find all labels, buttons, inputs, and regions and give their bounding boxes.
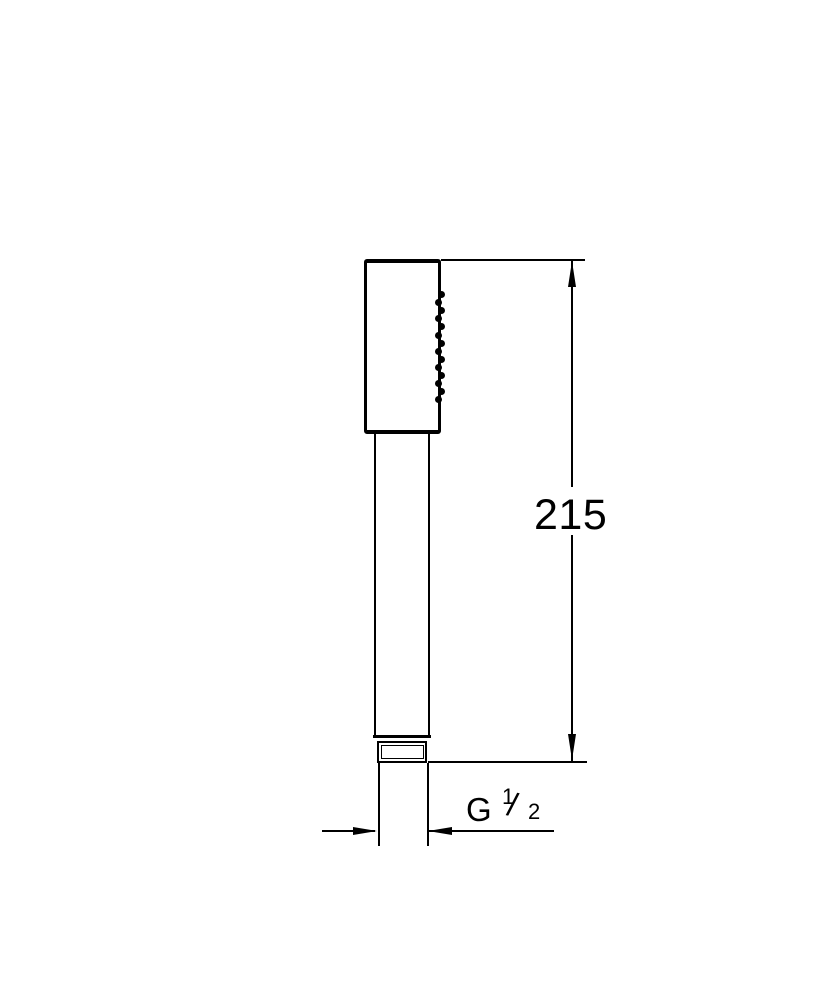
spray-nozzle-dot [438,307,445,314]
handle-right-edge [428,434,430,736]
dimension-arrow-left-icon [428,827,452,835]
dimension-arrow-right-icon [353,827,377,835]
height-dimension-label: 215 [534,494,607,537]
extension-line-bottom [428,761,587,763]
spray-nozzle-dot [435,380,442,387]
thread-dimension-label: G 1 / 2 [466,783,556,823]
connector-nut-inner [381,745,424,759]
extension-line-top [441,259,585,261]
connector-nut [377,741,427,763]
spray-nozzles-column [434,291,445,405]
pipe-left-edge [378,763,380,846]
dimension-arrow-up-icon [568,261,576,287]
spray-nozzle-dot [438,356,445,363]
height-dimension-line-upper [571,260,573,487]
spray-nozzle-dot [435,348,442,355]
spray-nozzle-dot [438,323,445,330]
technical-drawing: 215 G 1 / 2 [0,0,833,1000]
spray-nozzle-dot [438,388,445,395]
thread-letter: G [466,793,492,826]
spray-nozzle-dot [438,291,445,298]
handle-left-edge [374,434,376,736]
spray-nozzle-dot [435,364,442,371]
shower-head-body [364,259,441,434]
spray-nozzle-dot [435,299,442,306]
spray-nozzle-dot [435,396,442,403]
spray-nozzle-dot [438,340,445,347]
thread-denominator: 2 [528,801,540,823]
spray-nozzle-dot [438,372,445,379]
handle-bottom-edge [373,735,431,738]
spray-nozzle-dot [435,315,442,322]
height-dimension-line-lower [571,535,573,761]
spray-nozzle-dot [435,332,442,339]
dimension-arrow-down-icon [568,734,576,760]
